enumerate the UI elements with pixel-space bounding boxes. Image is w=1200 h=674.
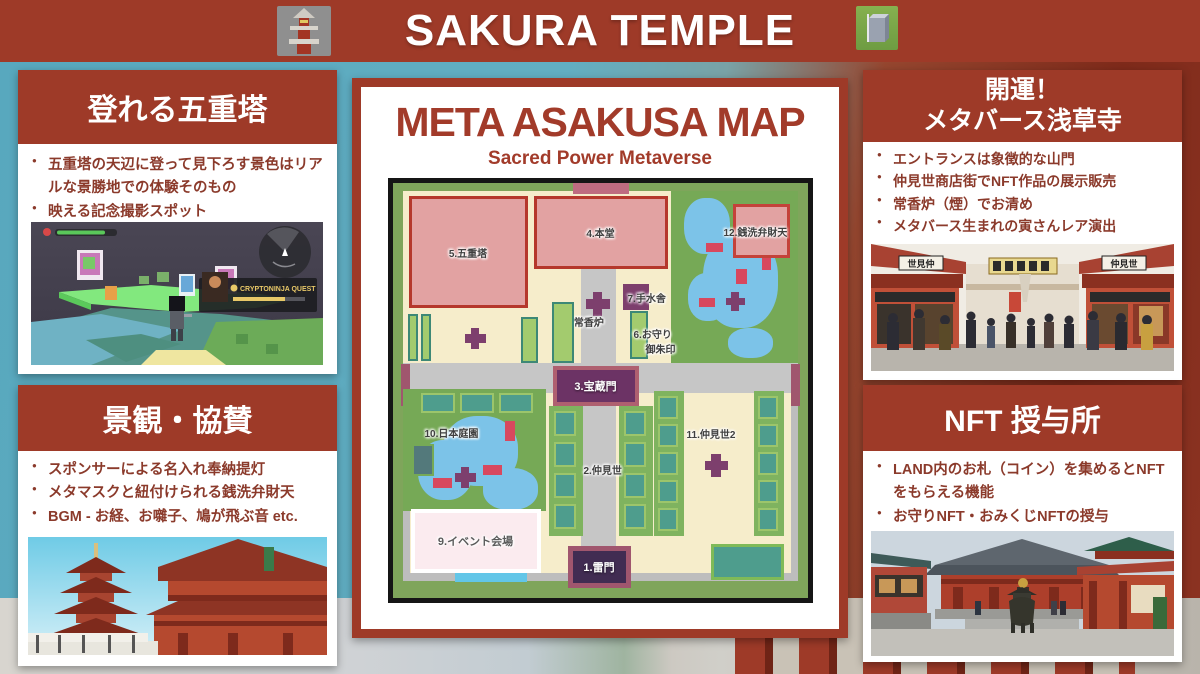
map-loc-jokoro (586, 292, 610, 316)
panel-nft-header: NFT 授与所 (863, 385, 1182, 451)
map-label-12: 12.銭洗弁財天 (724, 224, 788, 239)
map-north-gate (573, 183, 629, 194)
panel-pagoda-bullets: 五重塔の天辺に登って見下ろす景色はリアルな景勝地での体験そのもの 映える記念撮影… (28, 154, 331, 224)
map-shrine-marker (465, 328, 486, 349)
panel-scenery: 景観・協賛 スポンサーによる名入れ奉納提灯 メタマスクと紐付けられる銭洗弁財天 … (18, 385, 337, 666)
nakamise-street-photo: 世見仲 仲見世 (871, 244, 1174, 371)
bullet-item: お守りNFT・おみくじNFTの授与 (893, 506, 1176, 529)
map-label-5: 5.五重塔 (449, 245, 487, 260)
map-pond (728, 328, 773, 358)
visitor (1051, 601, 1057, 615)
incense-burner (1007, 587, 1037, 633)
bullet-item: メタマスクと紐付けられる銭洗弁財天 (48, 482, 331, 505)
map-label-7: 7.手水舎 (628, 290, 666, 305)
bullet-item: 五重塔の天辺に登って見下ろす景色はリアルな景勝地での体験そのもの (48, 154, 331, 201)
game-screenshot: CRYPTONINJA QUEST (31, 222, 323, 365)
map-bridge (736, 269, 747, 284)
map-loc-gojunoto: 5.五重塔 (409, 196, 528, 308)
nft-poster (77, 250, 103, 280)
right-pavilion (1077, 537, 1174, 629)
map-stall (521, 317, 538, 363)
map-bridge (433, 478, 452, 488)
asakusa-map: 5.五重塔 4.本堂 12.銭洗弁財天 7.手水舎 8.常香炉 6.お守り 御朱… (388, 178, 813, 603)
map-loc-hondo: 4.本堂 (534, 196, 668, 269)
map-label-9: 9.イベント会場 (438, 533, 513, 549)
panel-luck-title-line1: 開運！ (985, 75, 1060, 106)
map-label-3: 3.宝蔵門 (574, 378, 616, 394)
map-nakamise-strip (549, 406, 583, 536)
panel-pagoda-header: 登れる五重塔 (18, 70, 337, 144)
bullet-item: BGM - お経、お囃子、鳩が飛ぶ音 etc. (48, 506, 331, 529)
panel-scenery-title: 景観・協賛 (103, 396, 253, 440)
map-shrine-marker (705, 454, 728, 477)
map-label-2: 2.仲見世 (584, 462, 622, 477)
panel-pagoda: 登れる五重塔 五重塔の天辺に登って見下ろす景色はリアルな景勝地での体験そのもの … (18, 70, 337, 374)
quest-title: CRYPTONINJA QUEST (240, 286, 316, 293)
panel-luck: 開運！ メタバース浅草寺 エントランスは象徴的な山門 仲見世商店街でNFT作品の… (863, 70, 1182, 380)
poster-title: SAKURA TEMPLE (405, 6, 795, 56)
bullet-item: 常香炉（煙）でお清め (893, 193, 1176, 215)
map-loc-hozomon: 3.宝蔵門 (553, 366, 639, 406)
street-center (966, 258, 1079, 344)
map-bridge (699, 298, 715, 307)
map-se-building (711, 544, 784, 580)
panel-nft-bullets: LAND内のお札（コイン）を集めるとNFTをもらえる機能 お守りNFT・おみくじ… (873, 459, 1176, 529)
panel-luck-title-line2: メタバース浅草寺 (923, 106, 1122, 137)
nft-poster (105, 286, 117, 300)
bullet-item: LAND内のお札（コイン）を集めるとNFTをもらえる機能 (893, 459, 1176, 506)
map-nakamise-strip (754, 391, 784, 536)
panel-nft-title: NFT 授与所 (944, 396, 1101, 440)
map-label-6b: 御朱印 (646, 341, 676, 356)
panel-luck-bullets: エントランスは象徴的な山門 仲見世商店街でNFT作品の展示販売 常香炉（煙）でお… (873, 148, 1176, 238)
map-stall (408, 314, 418, 361)
panel-scenery-bullets: スポンサーによる名入れ奉納提灯 メタマスクと紐付けられる銭洗弁財天 BGM - … (28, 459, 331, 529)
map-bridge (483, 465, 502, 475)
poster: { "banner": { "title": "SAKURA TEMPLE", … (0, 0, 1200, 674)
map-stall (499, 393, 533, 413)
pagoda-gate-photo (28, 537, 327, 655)
panel-luck-header: 開運！ メタバース浅草寺 (863, 70, 1182, 142)
map-nakamise-strip (654, 391, 684, 536)
nft-poster (179, 274, 195, 296)
panel-scenery-header: 景観・協賛 (18, 385, 337, 451)
cube-3d-icon (856, 6, 898, 50)
map-nakamise-strip (619, 406, 653, 536)
bullet-item: メタバース生まれの寅さんレア演出 (893, 215, 1176, 237)
top-banner: SAKURA TEMPLE (0, 0, 1200, 62)
street-sign-right: 仲見世 (1110, 258, 1137, 269)
map-pond (688, 273, 728, 321)
street-sign-left: 世見仲 (907, 258, 934, 269)
bullet-item: エントランスは象徴的な山門 (893, 148, 1176, 170)
map-stall (421, 393, 455, 413)
map-bridge (706, 243, 723, 252)
map-title: META ASAKUSA MAP (361, 99, 839, 146)
map-label-6a: 6.お守り (634, 326, 672, 341)
bullet-item: 仲見世商店街でNFT作品の展示販売 (893, 170, 1176, 192)
map-label-4: 4.本堂 (586, 225, 614, 240)
map-stall (460, 393, 494, 413)
panel-pagoda-title: 登れる五重塔 (88, 85, 268, 129)
panel-nft: NFT 授与所 LAND内のお札（コイン）を集めるとNFTをもらえる機能 お守り… (863, 385, 1182, 662)
bullet-item: スポンサーによる名入れ奉納提灯 (48, 459, 331, 482)
map-subtitle: Sacred Power Metaverse (361, 148, 839, 170)
minimap (259, 226, 311, 278)
map-shrine-marker (726, 292, 745, 311)
map-loc-kaminarimon: 1.雷門 (568, 546, 631, 588)
map-gate-pillar (791, 364, 800, 406)
quest-panel: CRYPTONINJA QUEST (199, 272, 317, 312)
map-label-11: 11.仲見世2 (687, 426, 736, 441)
map-water-strip (455, 573, 527, 582)
pagoda-3d-icon (277, 6, 331, 56)
visitor (1060, 601, 1066, 615)
map-shrine-marker (455, 467, 476, 488)
map-bridge (505, 421, 515, 441)
map-stall (421, 314, 431, 361)
map-loc-event: 9.イベント会場 (411, 509, 541, 573)
map-stall (552, 302, 574, 363)
map-label-1: 1.雷門 (583, 559, 614, 575)
visitor (975, 601, 981, 615)
map-teahouse (412, 444, 434, 476)
map-bridge (762, 258, 771, 270)
map-label-10: 10.日本庭園 (425, 425, 479, 440)
sensoji-temple-photo (871, 531, 1174, 656)
map-panel: META ASAKUSA MAP Sacred Power Metaverse … (352, 78, 848, 638)
bullet-item: 映える記念撮影スポット (48, 201, 331, 224)
